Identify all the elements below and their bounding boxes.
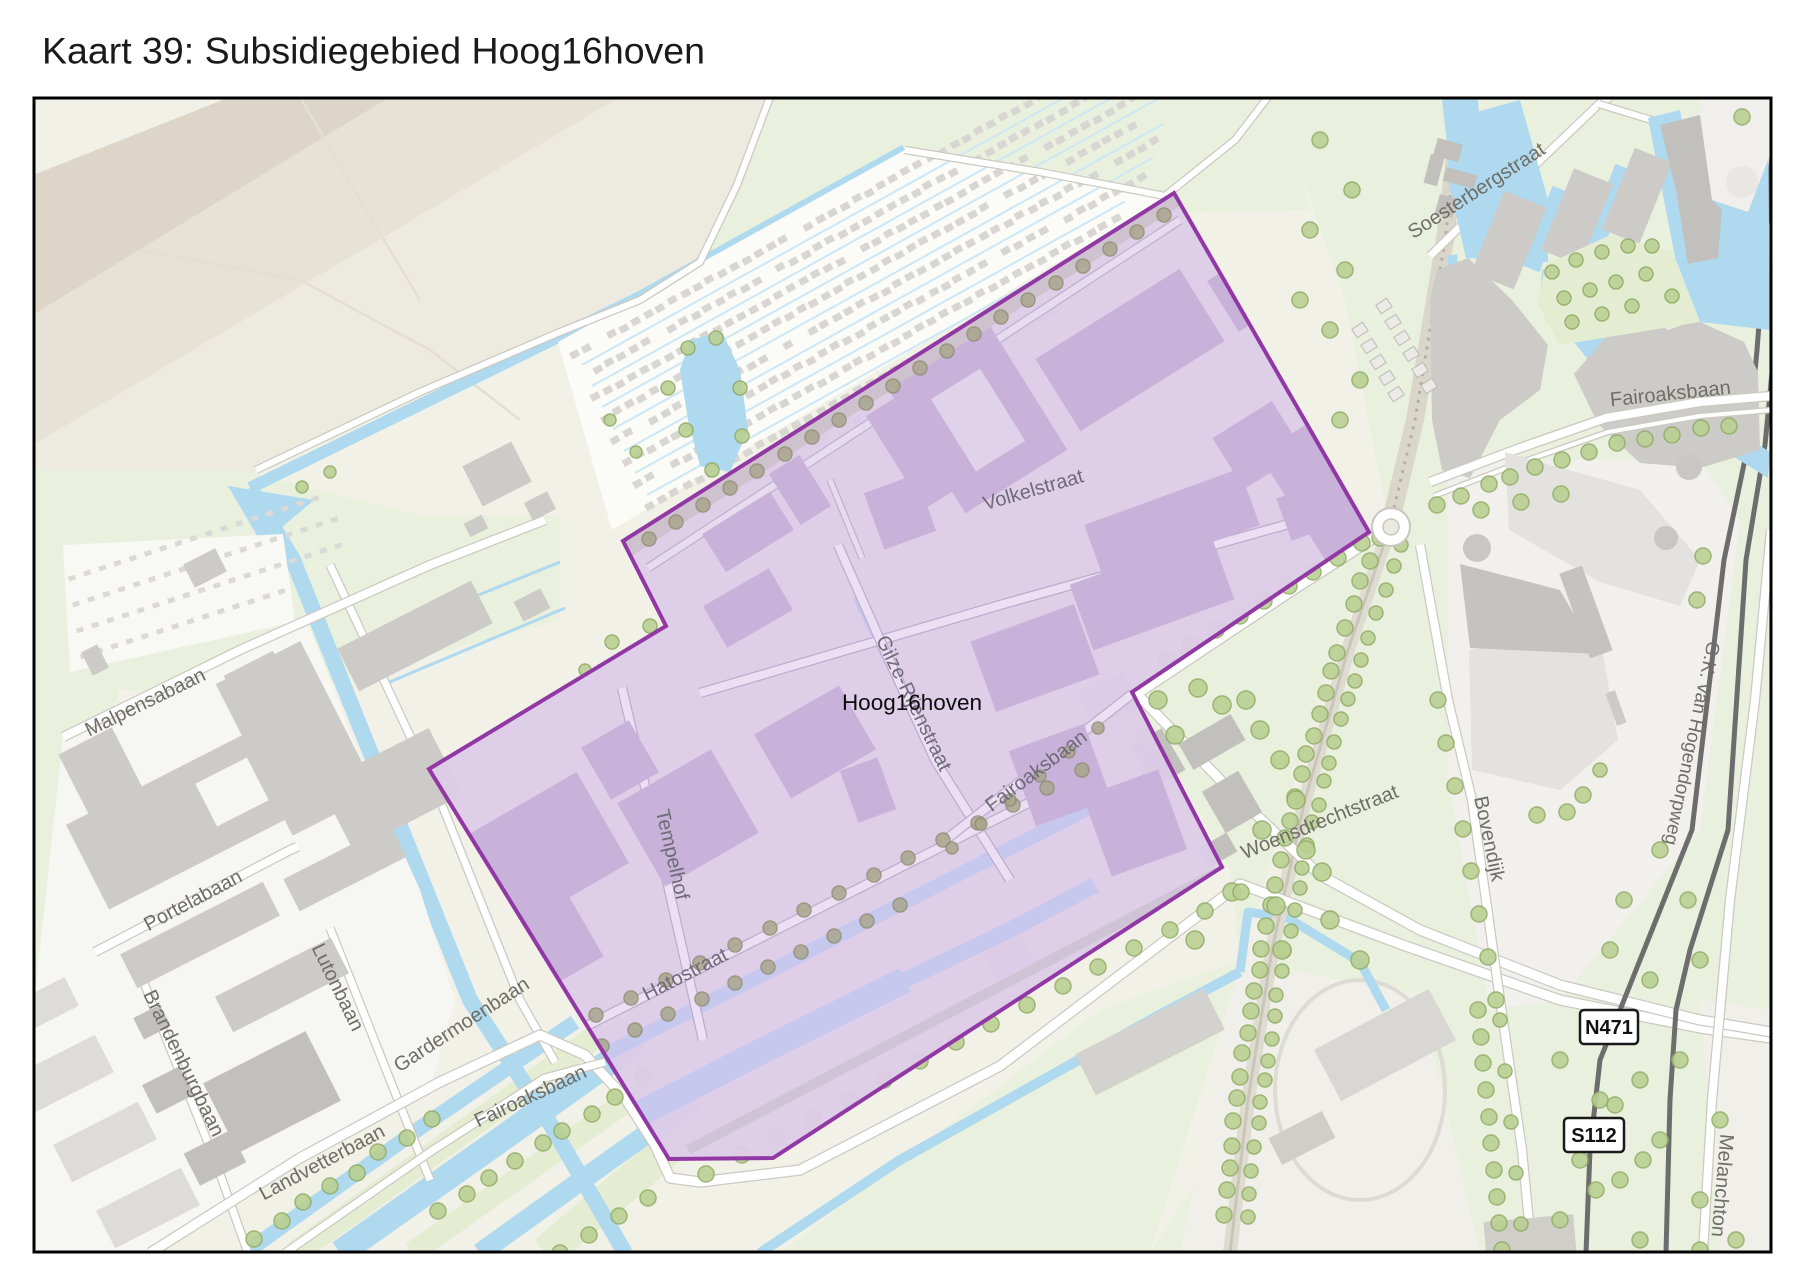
- svg-text:Hoog16hoven: Hoog16hoven: [842, 690, 982, 715]
- svg-text:Kaart 39: Subsidiegebied Hoog1: Kaart 39: Subsidiegebied Hoog16hoven: [42, 30, 705, 72]
- svg-text:S112: S112: [1571, 1125, 1617, 1147]
- svg-text:N471: N471: [1585, 1017, 1633, 1039]
